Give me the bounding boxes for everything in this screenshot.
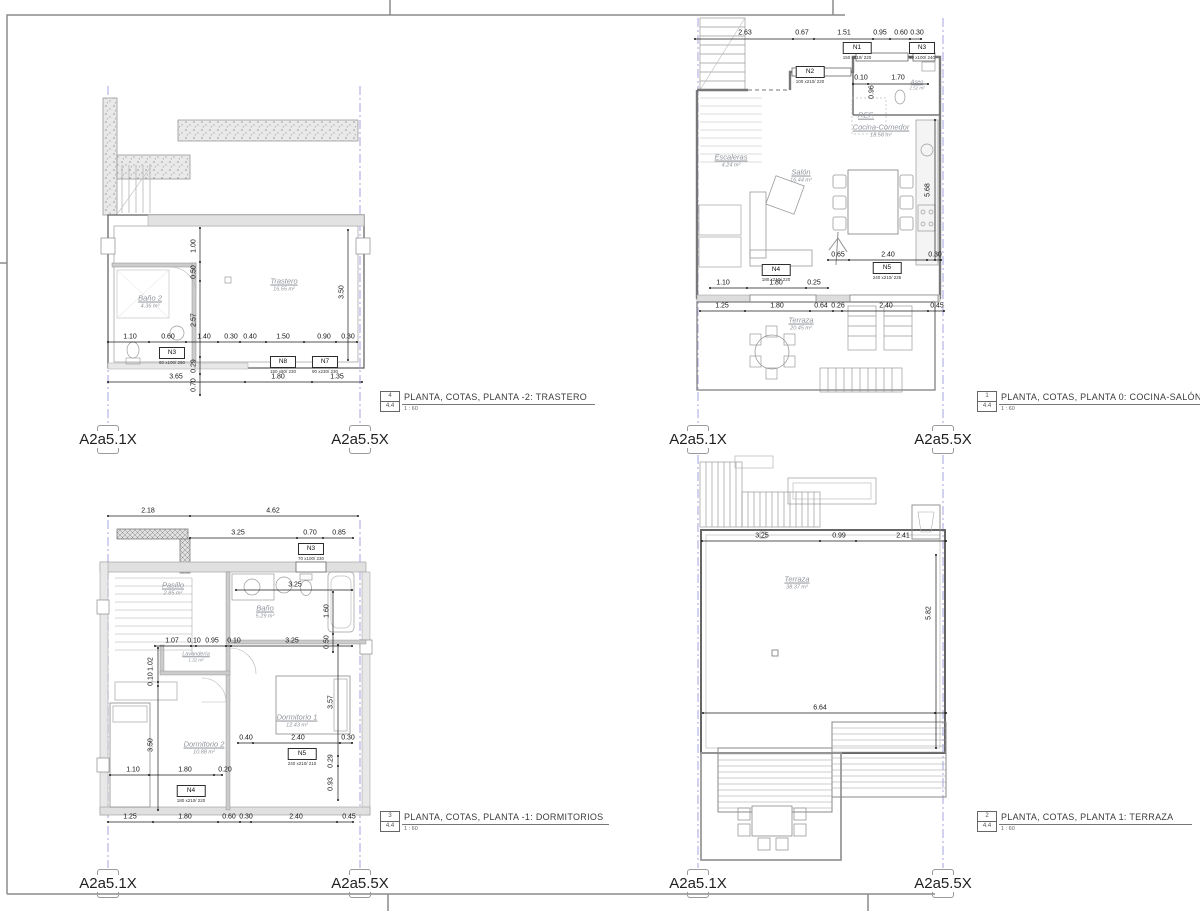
dim-label: 1.80 (178, 814, 192, 821)
dim-label: 0.45 (930, 303, 944, 310)
dim-label: 1.25 (123, 814, 137, 821)
dim-label: 0.95 (873, 30, 887, 37)
plan-trastero-drawing (101, 98, 370, 395)
walls (101, 215, 370, 369)
dim-label: 0.20 (218, 767, 232, 774)
dim-label: 2.63 (738, 30, 752, 37)
view-title: PLANTA, COTAS, PLANTA 1: TERRAZA (999, 811, 1192, 825)
room-label-bano: Baño5.29 m² (256, 605, 275, 620)
view-title: PLANTA, COTAS, PLANTA 0: COCINA-SALÓN (999, 391, 1200, 405)
window-tag-n3: N360 x100/ 240 (909, 42, 935, 60)
dim-label: 3.25 (755, 533, 769, 540)
room-label-pasillo: Pasillo2.85 m² (162, 582, 184, 597)
dim-label: 1.80 (178, 767, 192, 774)
dim-label: 0.30 (928, 252, 942, 259)
dim-label: 0.64 (814, 303, 828, 310)
dim-label: 1.07 (165, 638, 179, 645)
dim-label: 0.26 (831, 303, 845, 310)
dim-label: 1.10 (123, 334, 137, 341)
dim-label: 1.80 (770, 303, 784, 310)
room-label-aseo: Aseo2.52 m² (909, 79, 924, 90)
dim-label: 5.82 (926, 606, 933, 620)
dim-label: 0.40 (239, 735, 253, 742)
title-block-cocina: 14.4 PLANTA, COTAS, PLANTA 0: COCINA-SAL… (977, 391, 1200, 412)
grid-bubble-icon (687, 448, 709, 454)
dim-label: 1.35 (330, 374, 344, 381)
dim-label: 4.62 (266, 508, 280, 515)
room-label-ref: REF. (858, 112, 874, 121)
grid-bubble-icon (687, 892, 709, 898)
deck (718, 722, 946, 812)
dim-label: 0.90 (317, 334, 331, 341)
dim-label: 0.30 (910, 30, 924, 37)
dim-label: 0.67 (795, 30, 809, 37)
room-label-lavanderia: Lavandería1.32 m² (182, 651, 210, 662)
dim-label: 0.65 (831, 252, 845, 259)
dim-label: 1.02 (148, 657, 155, 671)
title-block-terraza: 24.4 PLANTA, COTAS, PLANTA 1: TERRAZA 1 … (977, 811, 1192, 832)
room-label-bano2: Baño 24.36 m² (138, 295, 162, 310)
dim-label: 0.30 (224, 334, 238, 341)
dim-label: 0.95 (205, 638, 219, 645)
grid-bubble-icon (97, 448, 119, 454)
room-label-salon: Salón16.44 m² (790, 169, 812, 184)
window-tag-n5: N5240 x210/ 225 (873, 262, 902, 280)
dim-label: 6.64 (813, 705, 827, 712)
room-label-trastero: Trastero16.55 m² (270, 278, 297, 293)
dim-label: 0.50 (324, 635, 331, 649)
view-scale: 1 : 60 (999, 405, 1200, 412)
dim-label: 2.57 (191, 313, 198, 327)
dim-label: 1.10 (126, 767, 140, 774)
walls (701, 505, 945, 860)
dim-label: 0.99 (832, 533, 846, 540)
window-tag-n3: N360 x100/ 250 (159, 347, 185, 365)
dim-label: 0.29 (328, 754, 335, 768)
dim-label: 0.70 (303, 530, 317, 537)
room-label-escaleras: Escaleras4.24 m² (715, 154, 748, 169)
dim-label: 2.40 (881, 252, 895, 259)
dim-label: 1.25 (715, 303, 729, 310)
dim-label: 3.50 (339, 285, 346, 299)
room-label-dormitorio1: Dormitorio 112.43 m² (277, 714, 318, 729)
grid-marker: A2a5.1X (73, 425, 143, 454)
dim-label: 0.60 (222, 814, 236, 821)
dim-label: 0.29 (191, 359, 198, 373)
view-scale: 1 : 60 (402, 825, 609, 832)
dim-label: 3.25 (288, 582, 302, 589)
dim-label: 0.85 (332, 530, 346, 537)
grid-marker: A2a5.1X (663, 425, 733, 454)
dim-label: 0.40 (243, 334, 257, 341)
dim-label: 3.50 (148, 738, 155, 752)
room-label-terraza: Terraza20.45 m² (788, 317, 813, 332)
window-tag-n8: N8150 x80/ 230 (270, 356, 296, 374)
grid-bubble-icon (349, 892, 371, 898)
grid-marker: A2a5.1X (73, 869, 143, 898)
dim-label: 0.10 (854, 75, 868, 82)
dim-label: 0.25 (807, 280, 821, 287)
walls (697, 57, 940, 298)
dim-label: 0.45 (342, 814, 356, 821)
dim-label: 5.68 (925, 183, 932, 197)
window-tag-n5: N5240 x210/ 210 (288, 748, 317, 766)
stairs (700, 456, 876, 527)
terrace (697, 295, 940, 392)
grid-marker: A2a5.5X (908, 869, 978, 898)
dim-label: 0.10 (148, 672, 155, 686)
plan-linework (0, 0, 1200, 911)
view-number-box: 34.4 (380, 811, 400, 832)
dim-label: 1.60 (324, 604, 331, 618)
dim-label: 3.25 (231, 530, 245, 537)
grid-lines (108, 18, 943, 868)
view-scale: 1 : 60 (402, 405, 595, 412)
dim-label: 2.41 (896, 533, 910, 540)
dim-label: 0.30 (239, 814, 253, 821)
view-title: PLANTA, COTAS, PLANTA -2: TRASTERO (402, 391, 595, 405)
view-number-box: 14.4 (977, 391, 997, 412)
dim-label: 2.18 (141, 508, 155, 515)
furniture (738, 806, 806, 850)
title-block-trastero: 44.4 PLANTA, COTAS, PLANTA -2: TRASTERO … (380, 391, 595, 412)
dim-label: 0.10 (187, 638, 201, 645)
grid-marker: A2a5.5X (325, 425, 395, 454)
dim-label: 1.50 (276, 334, 290, 341)
dim-label: 1.40 (197, 334, 211, 341)
dim-label: 0.60 (161, 334, 175, 341)
dim-label: 0.60 (894, 30, 908, 37)
window-tag-n4: N4180 x210/ 220 (762, 264, 791, 282)
dim-label: 0.93 (328, 777, 335, 791)
view-number-box: 24.4 (977, 811, 997, 832)
grid-bubble-icon (349, 448, 371, 454)
dim-label: 3.65 (169, 374, 183, 381)
grid-marker: A2a5.5X (325, 869, 395, 898)
dim-label: 1.10 (716, 280, 730, 287)
window-tag-n4: N4180 x210/ 220 (177, 785, 206, 803)
drawing-sheet: 1.10 0.60 1.40 0.30 0.40 1.50 0.90 0.30 … (0, 0, 1200, 911)
plan-terraza-drawing (700, 456, 946, 860)
window-tag-n1: N1150 x210/ 220 (843, 42, 872, 60)
dim-label: 2.40 (289, 814, 303, 821)
grid-marker: A2a5.1X (663, 869, 733, 898)
dim-label: 3.25 (285, 638, 299, 645)
dim-label: 0.30 (341, 334, 355, 341)
grid-bubble-icon (932, 448, 954, 454)
room-label-terraza: Terraza38.37 m² (784, 576, 809, 591)
dim-label: 2.40 (291, 735, 305, 742)
view-title: PLANTA, COTAS, PLANTA -1: DORMITORIOS (402, 811, 609, 825)
dim-label: 1.51 (837, 30, 851, 37)
grid-bubble-icon (932, 892, 954, 898)
dim-label: 3.57 (328, 695, 335, 709)
dim-label: 0.10 (227, 638, 241, 645)
concrete-walls (103, 98, 358, 215)
window-tag-n3: N370 x100/ 230 (298, 543, 324, 561)
title-block-dormitorios: 34.4 PLANTA, COTAS, PLANTA -1: DORMITORI… (380, 811, 609, 832)
dim-label: 1.80 (271, 374, 285, 381)
grid-bubble-icon (97, 892, 119, 898)
view-number-box: 44.4 (380, 391, 400, 412)
dim-label: 0.50 (191, 265, 198, 279)
dim-label: 1.70 (891, 75, 905, 82)
room-label-cocina-comedor: Cocina-Comedor18.56 m² (853, 124, 910, 139)
window-tag-n2: N2100 x210/ 220 (796, 66, 825, 84)
dim-label: 2.40 (879, 303, 893, 310)
window-tag-n7: N790 x230/ 230 (312, 356, 338, 374)
dim-label: 0.96 (869, 85, 876, 99)
dim-label: 0.70 (191, 378, 198, 392)
dim-label: 0.30 (341, 735, 355, 742)
dim-label: 1.00 (191, 239, 198, 253)
dimension-lines (702, 541, 946, 748)
view-scale: 1 : 60 (999, 825, 1192, 832)
grid-marker: A2a5.5X (908, 425, 978, 454)
room-label-dormitorio2: Dormitorio 210.88 m² (184, 741, 225, 756)
